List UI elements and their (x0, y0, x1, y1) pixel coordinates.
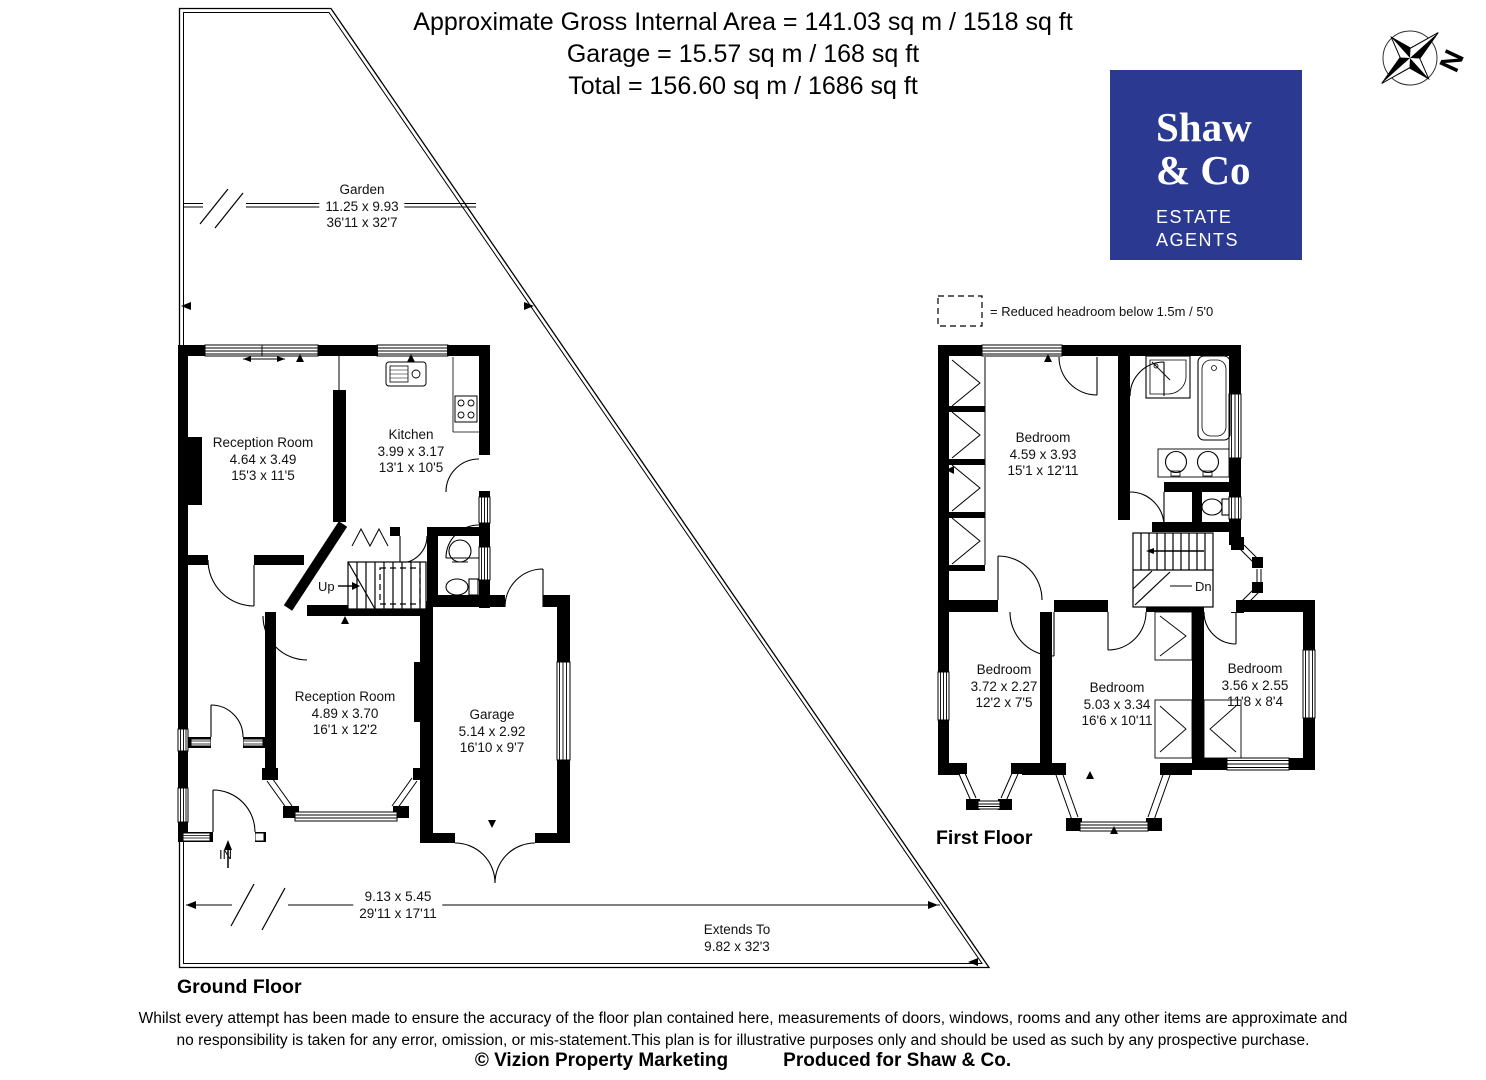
room-label-bedroom-3: Bedroom 5.03 x 3.34 16'6 x 10'11 (1082, 680, 1153, 730)
logo-sub-line1: ESTATE (1156, 206, 1302, 229)
logo-sub: ESTATE AGENTS (1156, 206, 1302, 252)
credits-row: © Vizion Property Marketing Produced for… (0, 1050, 1486, 1072)
ground-floor-plan (178, 9, 989, 968)
first-floor-title: First Floor (936, 827, 1032, 850)
stairs-up-label: Up (318, 579, 335, 594)
room-label-reception-1: Reception Room 4.64 x 3.49 15'3 x 11'5 (213, 435, 314, 485)
logo-sub-line2: AGENTS (1156, 229, 1302, 252)
copyright-credit: © Vizion Property Marketing (475, 1050, 728, 1072)
disclaimer-line1: Whilst every attempt has been made to en… (0, 1008, 1486, 1030)
room-label-garage: Garage 5.14 x 2.92 16'10 x 9'7 (459, 707, 526, 757)
produced-for-credit: Produced for Shaw & Co. (783, 1050, 1011, 1072)
disclaimer-line2: no responsibility is taken for any error… (0, 1030, 1486, 1052)
room-label-bedroom-4: Bedroom 3.56 x 2.55 11'8 x 8'4 (1222, 661, 1289, 711)
agency-logo: Shaw & Co ESTATE AGENTS (1110, 70, 1302, 260)
logo-name-line1: Shaw (1156, 106, 1302, 149)
extends-to-label: Extends To 9.82 x 32'3 (704, 922, 771, 955)
stairs-down-label: Dn (1195, 579, 1212, 594)
logo-name-line2: & Co (1156, 149, 1302, 192)
room-label-kitchen: Kitchen 3.99 x 3.17 13'1 x 10'5 (378, 427, 445, 477)
reduced-headroom-legend: = Reduced headroom below 1.5m / 5'0 (990, 304, 1213, 319)
room-label-bedroom-2: Bedroom 3.72 x 2.27 12'2 x 7'5 (971, 662, 1038, 712)
room-label-bedroom-1: Bedroom 4.59 x 3.93 15'1 x 12'11 (1008, 430, 1079, 480)
ground-floor-title: Ground Floor (177, 976, 302, 999)
room-label-reception-2: Reception Room 4.89 x 3.70 16'1 x 12'2 (295, 689, 396, 739)
first-floor-plan (938, 296, 1315, 834)
disclaimer: Whilst every attempt has been made to en… (0, 1008, 1486, 1051)
floorplan-page: { "header": { "line1": "Approximate Gros… (0, 0, 1486, 1080)
garage-area-line: Garage = 15.57 sq m / 168 sq ft (0, 38, 1486, 70)
garden-label: Garden 11.25 x 9.93 36'11 x 32'7 (319, 182, 404, 232)
entrance-in-label: IN (219, 847, 232, 862)
overall-dimensions-label: 9.13 x 5.45 29'11 x 17'11 (353, 889, 442, 922)
gross-area-line: Approximate Gross Internal Area = 141.03… (0, 6, 1486, 38)
